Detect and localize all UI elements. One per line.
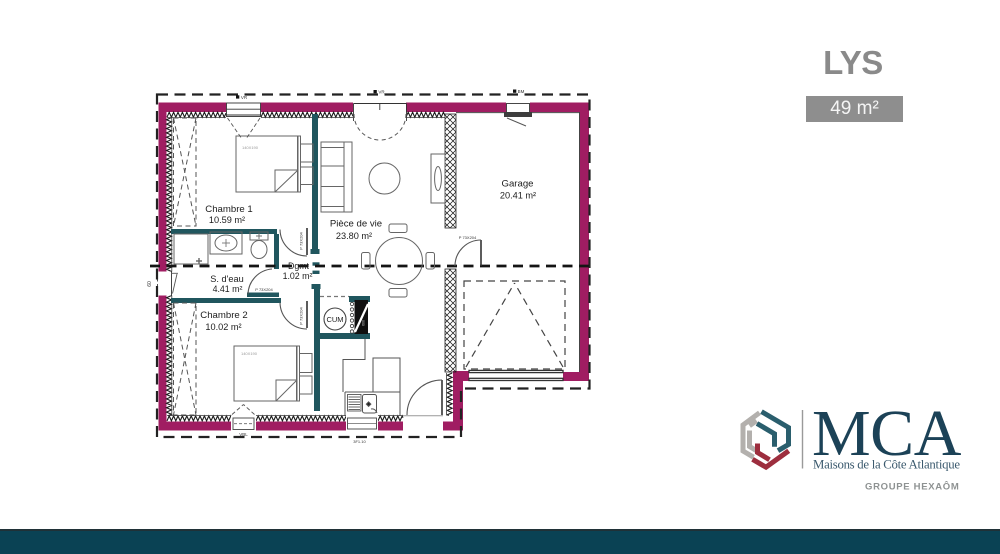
svg-text:P 73X204: P 73X204	[299, 231, 304, 249]
svg-text:600: 600	[362, 320, 366, 326]
svg-text:VBL: VBL	[239, 432, 248, 437]
svg-text:P 73X204: P 73X204	[299, 306, 304, 324]
svg-text:Chambre 2: Chambre 2	[200, 310, 247, 321]
svg-text:23.80 m²: 23.80 m²	[336, 231, 372, 241]
svg-text:Pièce de vie: Pièce de vie	[330, 219, 382, 230]
svg-text:P 73X204: P 73X204	[255, 287, 273, 292]
svg-text:10.59 m²: 10.59 m²	[209, 215, 245, 225]
svg-text:Dgmt: Dgmt	[288, 261, 310, 271]
svg-text:140X190: 140X190	[241, 351, 258, 356]
svg-text:3F1.10: 3F1.10	[353, 439, 366, 444]
svg-text:S. d'eau: S. d'eau	[210, 274, 243, 284]
svg-text:Chambre 1: Chambre 1	[205, 204, 252, 215]
svg-text:20.41 m²: 20.41 m²	[500, 191, 536, 201]
svg-text:Maisons de la Côte Atlantique: Maisons de la Côte Atlantique	[813, 458, 960, 472]
svg-text:CUM: CUM	[326, 315, 343, 324]
svg-text:BM: BM	[518, 89, 525, 94]
svg-text:4.41 m²: 4.41 m²	[213, 284, 243, 294]
svg-text:VR: VR	[378, 90, 385, 95]
svg-text:60: 60	[147, 281, 153, 287]
svg-text:P 73X204: P 73X204	[459, 235, 477, 240]
svg-text:10.02 m²: 10.02 m²	[205, 322, 241, 332]
svg-text:VR: VR	[241, 95, 248, 100]
svg-text:GROUPE HEXAÔM: GROUPE HEXAÔM	[865, 481, 960, 493]
svg-text:Garage: Garage	[502, 179, 534, 190]
svg-text:140X190: 140X190	[242, 145, 259, 150]
svg-text:1.02 m²: 1.02 m²	[283, 271, 313, 281]
